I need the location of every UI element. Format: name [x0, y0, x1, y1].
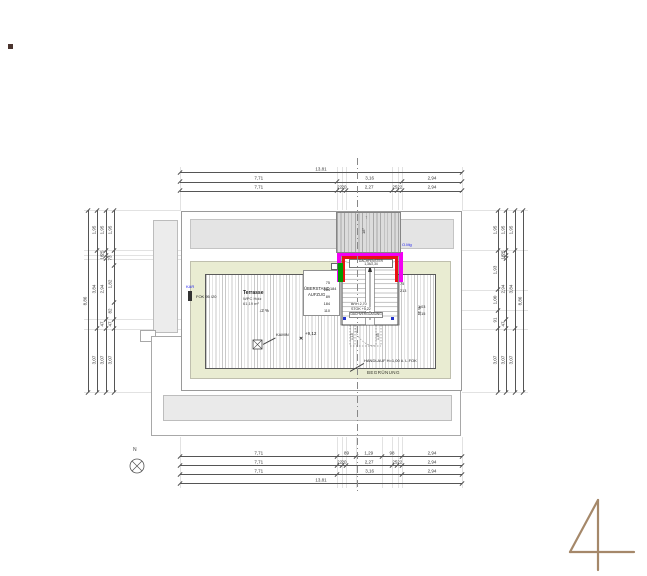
extension-line: [382, 437, 383, 488]
dim-label: 2,94: [500, 285, 505, 294]
elevator-box-dim: 184: [330, 287, 336, 291]
stair-brh-note: BRH 2,70: [351, 302, 367, 306]
dim-label: 3,84: [509, 285, 514, 294]
elevator-head-hatched: [336, 212, 401, 253]
dimension-chain: [106, 210, 107, 392]
dim-label: 47: [108, 322, 113, 327]
roof-slope-arrow-icon: ↑: [365, 216, 368, 222]
dim-label: 13,81: [315, 477, 326, 482]
extension-line: [84, 210, 181, 211]
roof-window-size: 1,34/2,34: [349, 263, 393, 267]
dimension-chain: [180, 456, 462, 457]
stair-dim: 1,10: [350, 333, 354, 340]
dim-label: 8,86: [82, 297, 87, 306]
stair-wall-green: [338, 263, 343, 282]
dimension-chain: [180, 483, 462, 484]
stair-dim: 184: [320, 288, 330, 292]
dim-label: 2,94: [428, 450, 437, 455]
dim-label: 2,94: [428, 468, 437, 473]
upper-roof-band: [190, 219, 454, 249]
dim-label: 3,07: [492, 356, 497, 365]
dimension-chain: [88, 210, 89, 392]
north-compass-icon: [126, 455, 148, 477]
dim-label: 1,95: [100, 226, 105, 235]
omg-label: O.Mg: [402, 243, 412, 248]
dim-label: 98: [389, 450, 394, 455]
dim-label: 3,16: [365, 468, 374, 473]
north-label: N: [133, 448, 137, 454]
dim-label: 73: [108, 255, 113, 260]
dim-label: 1,95: [509, 226, 514, 235]
dimension-chain: [180, 474, 462, 475]
dim-label: 1,29: [364, 450, 373, 455]
dim-label: 7,71: [254, 450, 263, 455]
dim-label: 2,94: [428, 459, 437, 464]
terrace-area: 61,19 m²: [243, 302, 259, 307]
roof-terrace-plan: 13,817,713,162,947,7122202,2725222,947,7…: [0, 0, 647, 576]
dim-label: 7,71: [254, 185, 263, 190]
dim-label: 1,95: [500, 226, 505, 235]
stair-stok-note: STOK +5,22: [351, 307, 371, 311]
dim-label: 3,07: [509, 356, 514, 365]
stair-dim: 75: [320, 281, 330, 285]
dimension-chain: [180, 182, 462, 183]
dim-label: 13,81: [315, 166, 326, 171]
anchor-dot-left: [343, 317, 346, 320]
artifact-square: [8, 44, 13, 49]
stair-dim: 75: [400, 282, 404, 286]
roof-slope-label: 18°: [362, 228, 367, 234]
dimension-chain: [498, 210, 499, 392]
extension-line: [462, 310, 528, 311]
dim-label: 47: [500, 322, 505, 327]
kamin-label: KAMIN: [276, 333, 289, 338]
left-roof-strip: [153, 220, 178, 333]
dim-label: 2,94: [428, 185, 437, 190]
dim-label: 1,95: [91, 226, 96, 235]
dim-label: 3,07: [500, 356, 505, 365]
dim-label: 1,95: [492, 226, 497, 235]
dim-label: 3,16: [365, 176, 374, 181]
kamin-symbol: [252, 339, 263, 350]
stair-dim: 184: [320, 302, 330, 306]
dim-label: 22: [397, 459, 402, 464]
fok-label: FOK 95 /20: [196, 295, 216, 300]
dimension-chain: [506, 210, 507, 392]
greening-label: BEGRÜNUNG: [367, 370, 400, 375]
kar-label: KAR: [186, 285, 194, 290]
dimension-chain: [97, 210, 98, 392]
dimension-chain: [515, 210, 516, 392]
dim-label: 1,93: [492, 265, 497, 274]
dim-label: 8,86: [517, 297, 522, 306]
dim-label: 1,82: [108, 279, 113, 288]
dimension-chain: [180, 191, 462, 192]
stair-dim: 2,15: [418, 312, 425, 316]
handrail-label: HANDLAUF H=1,00 ü. L.FOK: [364, 359, 417, 364]
dim-label: 47: [100, 322, 105, 327]
extension-line: [462, 210, 528, 211]
extension-line: [462, 250, 528, 251]
dim-label: 7,71: [254, 176, 263, 181]
dim-label: 1,00: [492, 296, 497, 305]
level-marker-icon: ✕: [299, 337, 303, 343]
kar-symbol: [188, 291, 192, 301]
lower-roof-band: [163, 395, 452, 421]
extension-line: [462, 392, 528, 393]
dim-label: 2,27: [365, 185, 374, 190]
anchor-dot-right: [391, 317, 394, 320]
dim-label: 7,71: [254, 468, 263, 473]
stair-dim: 1,05: [376, 333, 380, 340]
dim-label: 82: [108, 308, 113, 313]
stair-glazing-note: DACHVERGLASUNG: [349, 312, 383, 318]
dim-label: 3,84: [91, 285, 96, 294]
center-axis-line: [357, 158, 358, 492]
dimension-chain: [180, 465, 462, 466]
stair-dim: 110: [320, 309, 330, 313]
dim-label: 2,27: [365, 459, 374, 464]
dimension-chain: [180, 172, 462, 173]
dimension-chain: [523, 210, 524, 392]
slope-label-left: ↓2 %: [259, 308, 269, 313]
dim-label: 3,07: [108, 356, 113, 365]
dim-label: 7,71: [254, 459, 263, 464]
dim-label: 3,07: [91, 356, 96, 365]
dim-label: 91: [492, 317, 497, 322]
level-label: +9,12: [305, 331, 316, 336]
stair-dim: 213: [400, 289, 406, 293]
stair-dim: 1,03: [418, 305, 425, 309]
dim-label: 2,94: [100, 285, 105, 294]
dim-label: 1,95: [108, 226, 113, 235]
dim-label: 2,94: [428, 176, 437, 181]
column-marker: [331, 263, 338, 270]
stair-dim: 89: [320, 295, 330, 299]
dim-label: 89: [344, 450, 349, 455]
sheet-number-logo: [560, 492, 640, 572]
dim-label: 3,07: [100, 356, 105, 365]
